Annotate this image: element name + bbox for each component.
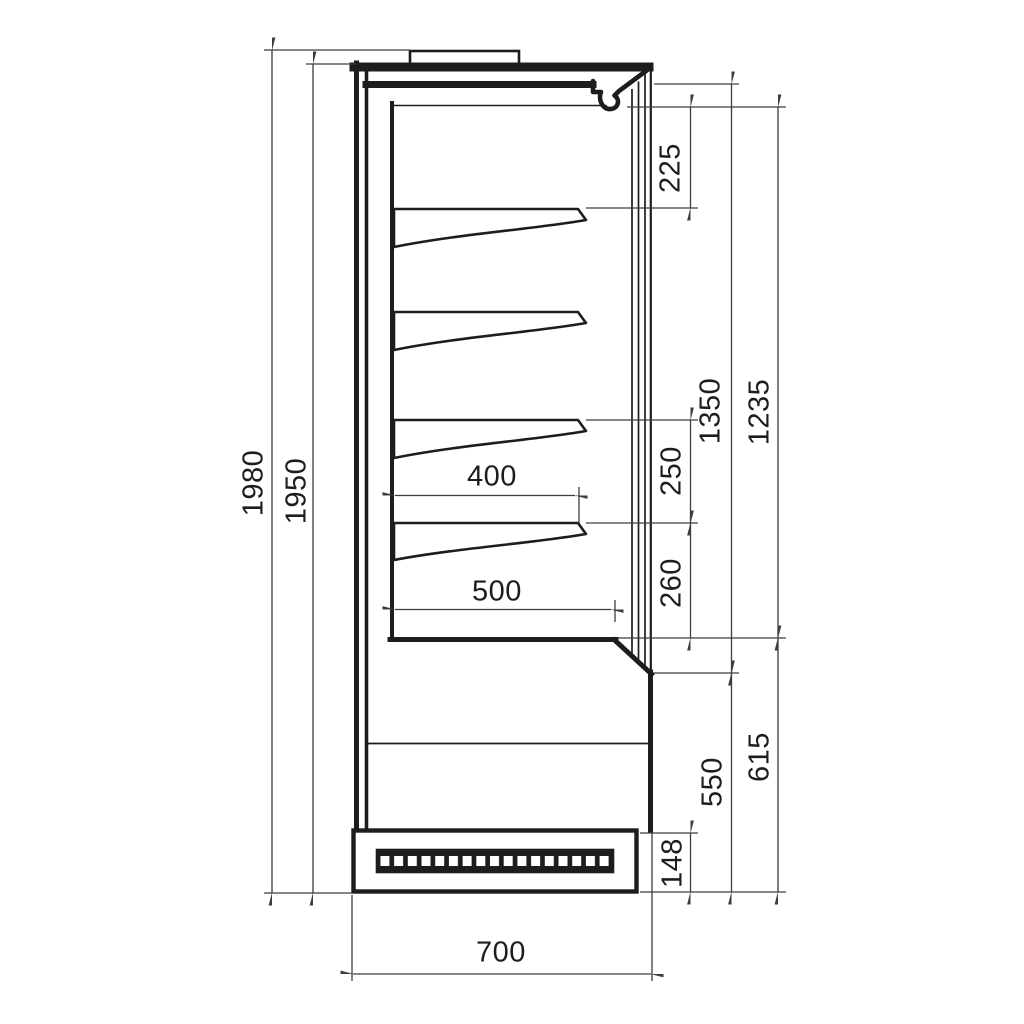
dim-label-overall-depth: 700 [476,939,526,968]
top-cap [410,51,519,64]
shelf-1 [394,209,586,247]
dim-label-bottom-gap: 260 [658,558,687,608]
plinth-grille [378,851,612,871]
dim-label-shelf-gap: 250 [658,446,687,496]
dim-label-overall-height: 1980 [240,450,269,517]
front-glass-lines [632,74,645,668]
shelves [394,209,586,560]
dim-label-shelf-depth-400: 400 [467,463,517,492]
dim-label-shelf-depth-500: 500 [472,578,522,607]
dim-label-body-height: 1950 [283,458,312,525]
shelf-4 [394,523,586,560]
dim-label-lower-front-height: 550 [699,757,728,807]
dim-label-inner-height-1235: 1235 [746,379,775,446]
shelf-3 [394,420,586,458]
dim-label-inner-height-1350: 1350 [697,378,726,445]
dim-label-lower-section-height: 615 [746,732,775,782]
shelf-2 [394,312,586,350]
dim-label-plinth-height: 148 [659,838,688,888]
cabinet-section-drawing [0,0,1024,1024]
dim-label-top-clearance: 225 [657,143,686,193]
drawing-canvas: 1980 1950 225 1350 1235 250 260 400 500 … [0,0,1024,1024]
